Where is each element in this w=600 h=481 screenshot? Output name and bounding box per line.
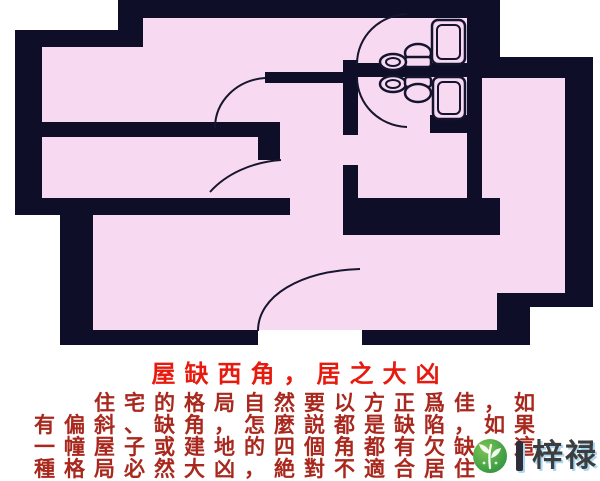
caption-line-2: 有偏斜、缺角，怎麼説都是缺陷，如果: [34, 414, 600, 436]
floor-plan: [0, 0, 600, 352]
bottom-door-opening: [258, 330, 362, 345]
caption-line-1: 住宅的格局自然要以方正爲佳，如: [34, 392, 600, 414]
watermark-text: 梓禄: [532, 436, 598, 476]
leaf-logo-icon: [470, 436, 510, 476]
screenshot-root: 屋缺西角，居之大凶 住宅的格局自然要以方正爲佳，如 有偏斜、缺角，怎麼説都是缺陷…: [0, 0, 600, 480]
sink-icon: [380, 76, 406, 92]
watermark: 梓禄: [470, 434, 598, 478]
sink-icon: [380, 54, 406, 70]
watermark-separator-bar: [516, 441, 523, 471]
caption-title: 屋缺西角，居之大凶: [0, 354, 600, 389]
